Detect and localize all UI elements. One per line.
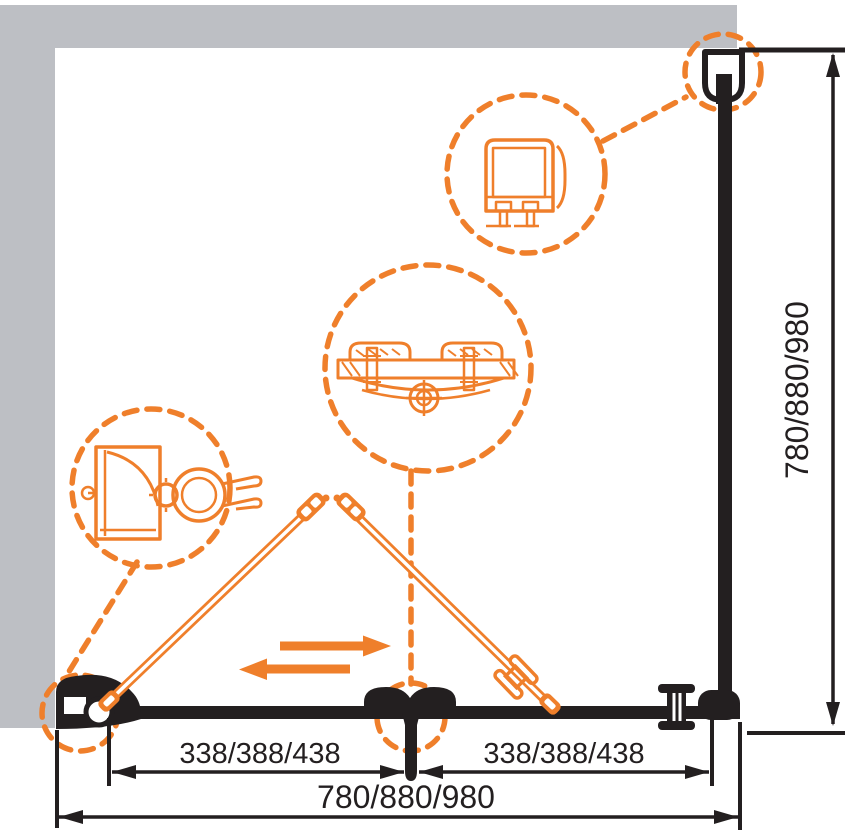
callout-circles xyxy=(42,34,761,751)
wall-left xyxy=(0,5,55,728)
callout-wall-profile-circle xyxy=(447,95,605,253)
folding-door-right-panel xyxy=(352,511,563,717)
dim-left-segment: 338/388/438 xyxy=(112,738,404,779)
dim-total-height: 780/880/980 xyxy=(779,53,840,726)
center-dimension-divider xyxy=(402,713,420,781)
callout-leader-left xyxy=(65,562,137,678)
technical-drawing-page: 338/388/438 338/388/438 780/880/980 780/… xyxy=(0,0,845,830)
dim-total-height-label: 780/880/980 xyxy=(779,301,815,479)
arrow-left-icon xyxy=(239,659,350,681)
fold-apex-hinge-icon xyxy=(294,490,368,524)
wall-top xyxy=(0,5,737,48)
callout-leader-top xyxy=(603,97,686,141)
dim-right-segment-label: 338/388/438 xyxy=(483,738,644,770)
dim-total-width: 780/880/980 xyxy=(59,779,738,824)
wall-profile-detail-icon xyxy=(486,140,565,226)
dim-total-width-label: 780/880/980 xyxy=(317,779,495,815)
fold-hinge-detail-icon xyxy=(338,343,518,416)
callout-fold-hinge-circle xyxy=(325,265,531,471)
wall-mount-bracket-icon xyxy=(705,52,742,104)
fixed-panel xyxy=(718,80,732,700)
pivot-profile-detail-icon xyxy=(82,447,261,539)
open-close-arrows-icon xyxy=(239,636,391,681)
dim-left-segment-label: 338/388/438 xyxy=(179,738,340,770)
folding-door-left-panel xyxy=(96,511,308,714)
dim-right-segment: 338/388/438 xyxy=(419,738,709,779)
drawing-canvas: 338/388/438 338/388/438 780/880/980 780/… xyxy=(0,0,845,830)
arrow-right-icon xyxy=(280,636,391,657)
